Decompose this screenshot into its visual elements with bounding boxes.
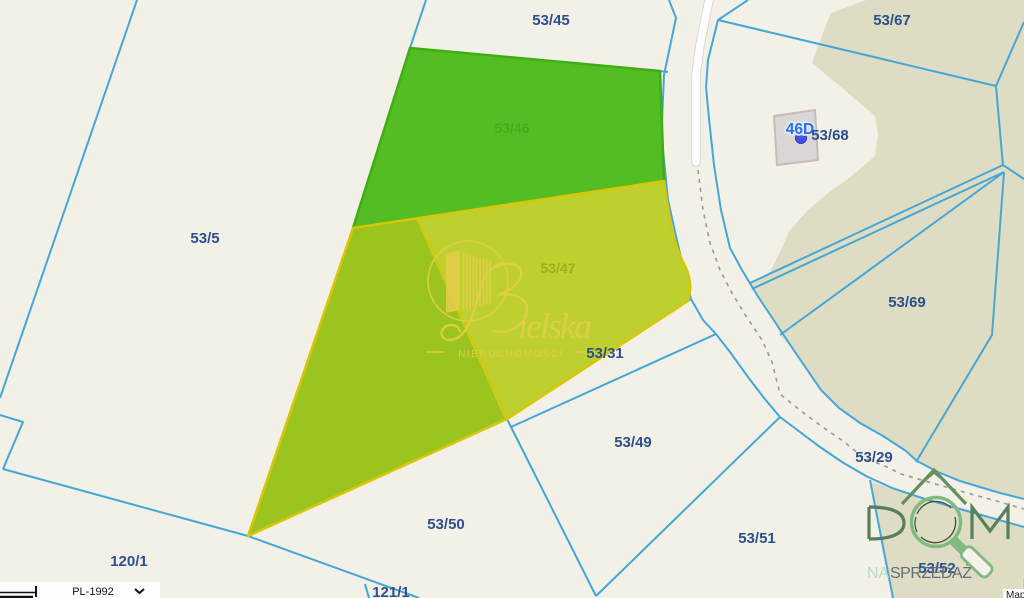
svg-text:53/47: 53/47: [540, 260, 575, 276]
svg-text:53/50: 53/50: [427, 516, 465, 533]
svg-text:53/46: 53/46: [494, 120, 529, 136]
svg-text:53/29: 53/29: [855, 449, 893, 466]
svg-text:53/49: 53/49: [614, 434, 652, 451]
svg-text:NIERUCHOMOŚCI: NIERUCHOMOŚCI: [458, 347, 564, 360]
svg-text:53/51: 53/51: [738, 530, 776, 547]
svg-text:PL-1992: PL-1992: [72, 586, 114, 598]
svg-text:53/67: 53/67: [873, 12, 911, 29]
svg-text:Map: Map: [1006, 590, 1024, 598]
svg-text:121/1: 121/1: [372, 584, 410, 598]
svg-text:46D: 46D: [786, 121, 814, 138]
svg-text:NA: NA: [867, 565, 890, 582]
svg-text:ielska: ielska: [518, 306, 591, 346]
svg-text:53/68: 53/68: [811, 127, 849, 144]
svg-text:120/1: 120/1: [110, 553, 148, 570]
svg-text:53/31: 53/31: [586, 345, 624, 362]
svg-text:53/69: 53/69: [888, 294, 926, 311]
svg-text:53/5: 53/5: [190, 230, 219, 247]
svg-text:SPRZEDAŻ: SPRZEDAŻ: [890, 563, 972, 582]
svg-text:53/45: 53/45: [532, 12, 570, 29]
